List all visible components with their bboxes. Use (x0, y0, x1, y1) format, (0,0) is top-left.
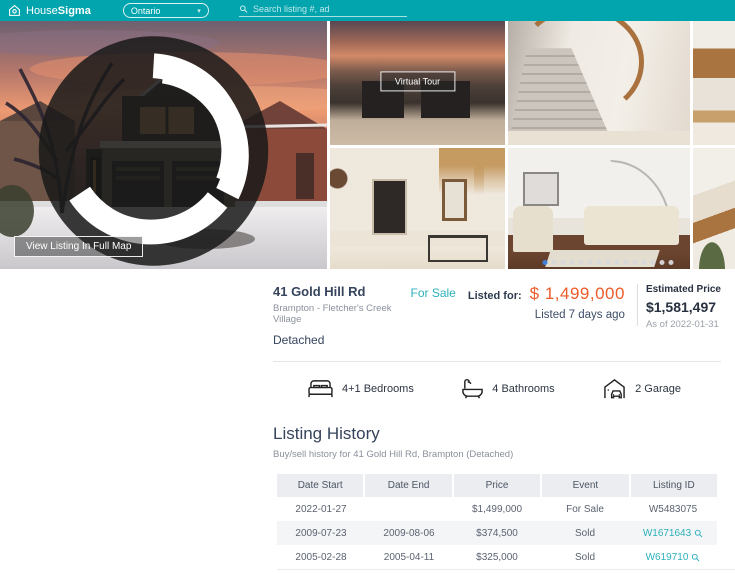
photo-detail (330, 163, 355, 194)
carousel-dot[interactable] (669, 260, 674, 265)
photo-detail (513, 206, 553, 252)
col-event: Event (542, 474, 628, 497)
cell-date-end (365, 497, 453, 521)
key-facts-row: 4+1 Bedrooms 4 Bathrooms (273, 362, 721, 400)
house-logo-icon (8, 4, 21, 17)
table-bottom-border (277, 569, 735, 570)
cell-price: $325,000 (453, 545, 541, 569)
vertical-divider (637, 284, 638, 326)
region-value: Ontario (131, 6, 161, 16)
listing-id-link[interactable]: W1671643 (643, 528, 703, 539)
bedrooms-fact: 4+1 Bedrooms (307, 377, 414, 400)
chevron-down-icon: ▾ (197, 7, 201, 15)
listing-page: HouseSigma Ontario ▾ (0, 0, 735, 573)
carousel-dots (543, 260, 674, 265)
garage-fact: 2 Garage (602, 377, 681, 400)
garage-icon (602, 378, 627, 400)
photo-gallery: View Listing In Full Map Virtual Tour (0, 21, 735, 269)
photo-detail (508, 131, 690, 145)
search-icon (239, 4, 248, 14)
search-input[interactable] (253, 4, 407, 14)
cell-date-start: 2005-02-28 (277, 545, 365, 569)
property-type: Detached (273, 333, 411, 347)
table-row: 2022-01-27 $1,499,000 For Sale W5483075 (277, 497, 717, 521)
carousel-dot[interactable] (615, 260, 620, 265)
listed-ago: Listed 7 days ago (468, 309, 625, 321)
listing-address: 41 Gold Hill Rd (273, 284, 411, 299)
bed-icon (307, 378, 334, 399)
cell-date-end: 2005-04-11 (365, 545, 453, 569)
view-full-map-button[interactable]: View Listing In Full Map (14, 236, 143, 257)
search-box (239, 4, 407, 17)
cell-price: $1,499,000 (453, 497, 541, 521)
magnifier-icon (694, 529, 703, 538)
carousel-dot[interactable] (660, 260, 665, 265)
carousel-dot[interactable] (552, 260, 557, 265)
badge-360-icon[interactable] (0, 27, 317, 269)
estimated-price-label: Estimated Price (646, 284, 721, 295)
listing-content: 41 Gold Hill Rd Brampton - Fletcher's Cr… (273, 269, 721, 570)
photo-hallway-partial[interactable] (693, 21, 735, 145)
photo-detail (697, 238, 726, 269)
carousel-dot[interactable] (543, 260, 548, 265)
brand-logo[interactable]: HouseSigma (8, 4, 91, 17)
estimated-price-value: $1,581,497 (646, 299, 721, 315)
cell-date-start: 2022-01-27 (277, 497, 365, 521)
cell-date-end: 2009-08-06 (365, 521, 453, 545)
col-date-end: Date End (365, 474, 451, 497)
photo-stair-partial[interactable] (693, 148, 735, 269)
main-photo-exterior[interactable]: View Listing In Full Map (0, 21, 327, 269)
table-row: 2009-07-23 2009-08-06 $374,500 Sold W167… (277, 521, 717, 545)
listing-price: $ 1,499,000 (530, 284, 625, 303)
photo-detail (474, 148, 506, 206)
photo-detail (372, 179, 407, 235)
bathrooms-label: 4 Bathrooms (492, 383, 554, 395)
carousel-dot[interactable] (633, 260, 638, 265)
cell-event: For Sale (541, 497, 629, 521)
photo-detail (584, 206, 679, 245)
carousel-dot[interactable] (579, 260, 584, 265)
table-header: Date Start Date End Price Event Listing … (277, 474, 717, 497)
photo-foyer[interactable] (330, 148, 505, 269)
photo-dusk-exterior[interactable]: Virtual Tour (330, 21, 505, 145)
brand-name-regular: House (26, 5, 58, 17)
magnifier-icon (691, 553, 700, 562)
region-selector[interactable]: Ontario ▾ (123, 3, 209, 18)
thumbnail-grid: Virtual Tour (330, 21, 735, 269)
history-subtitle: Buy/sell history for 41 Gold Hill Rd, Br… (273, 449, 721, 460)
brand-name-bold: Sigma (58, 5, 91, 17)
listed-for-label: Listed for: (468, 290, 522, 302)
table-row: 2005-02-28 2005-04-11 $325,000 Sold W619… (277, 545, 717, 569)
listing-id-text: W619710 (646, 552, 689, 563)
photo-detail (523, 172, 559, 206)
photo-detail (442, 179, 467, 220)
cell-listing-id: W5483075 (629, 497, 717, 521)
cell-event: Sold (541, 545, 629, 569)
listing-id-link[interactable]: W619710 (646, 552, 701, 563)
bathrooms-fact: 4 Bathrooms (461, 377, 554, 400)
listing-history-section: Listing History Buy/sell history for 41 … (273, 424, 721, 570)
listing-community: Brampton - Fletcher's Creek Village (273, 303, 411, 325)
cell-event: Sold (541, 521, 629, 545)
carousel-dot[interactable] (561, 260, 566, 265)
bedrooms-label: 4+1 Bedrooms (342, 383, 414, 395)
history-title: Listing History (273, 424, 721, 444)
cell-date-start: 2009-07-23 (277, 521, 365, 545)
virtual-tour-button[interactable]: Virtual Tour (380, 71, 455, 91)
photo-staircase[interactable] (508, 21, 690, 145)
col-listing-id: Listing ID (631, 474, 717, 497)
status-badge: For Sale (411, 286, 456, 300)
estimated-price-asof: As of 2022-01-31 (646, 319, 721, 330)
garage-label: 2 Garage (635, 383, 681, 395)
cell-price: $374,500 (453, 521, 541, 545)
carousel-dot[interactable] (588, 260, 593, 265)
col-price: Price (454, 474, 540, 497)
history-table: Date Start Date End Price Event Listing … (277, 474, 717, 569)
app-header: HouseSigma Ontario ▾ (0, 0, 735, 21)
photo-detail (428, 235, 488, 262)
estimate-block: Estimated Price $1,581,497 As of 2022-01… (646, 284, 721, 330)
listing-id-text: W1671643 (643, 528, 691, 539)
bath-icon (461, 377, 484, 400)
carousel-dot[interactable] (642, 260, 647, 265)
carousel-dot[interactable] (597, 260, 602, 265)
carousel-dot[interactable] (606, 260, 611, 265)
photo-living-room[interactable] (508, 148, 690, 269)
carousel-dot[interactable] (570, 260, 575, 265)
carousel-dot[interactable] (651, 260, 656, 265)
carousel-dot[interactable] (624, 260, 629, 265)
col-date-start: Date Start (277, 474, 363, 497)
price-block: Listed for:$ 1,499,000 Listed 7 days ago (468, 284, 625, 321)
listing-summary: 41 Gold Hill Rd Brampton - Fletcher's Cr… (273, 269, 721, 347)
